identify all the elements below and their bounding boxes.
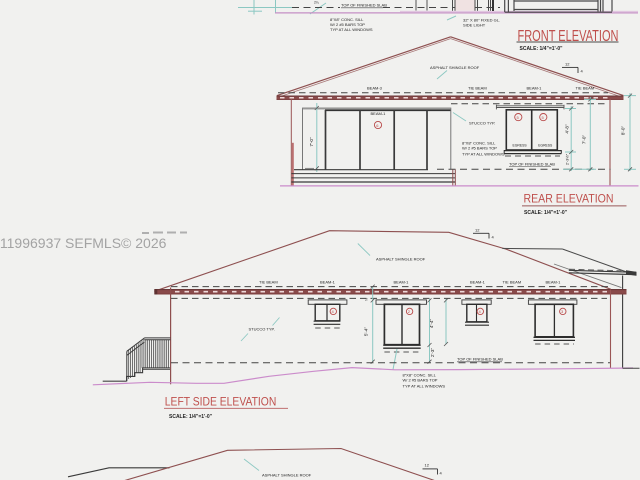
svg-text:¾: ¾ — [365, 298, 369, 301]
svg-text:7'-0": 7'-0" — [582, 135, 587, 145]
svg-text:TYP AT ALL WINDOWS: TYP AT ALL WINDOWS — [403, 383, 446, 388]
svg-text:TIE BEAM: TIE BEAM — [576, 86, 595, 91]
svg-text:12: 12 — [475, 228, 480, 233]
svg-text:2¼: 2¼ — [314, 1, 319, 5]
svg-text:STUCCO TYP.: STUCCO TYP. — [469, 121, 495, 126]
svg-text:EGRESS: EGRESS — [513, 144, 528, 148]
svg-text:5'-4": 5'-4" — [364, 327, 369, 337]
svg-text:BEAM-1: BEAM-1 — [527, 86, 543, 91]
svg-text:SIDE LIGHT: SIDE LIGHT — [463, 23, 486, 28]
svg-text:2'-3": 2'-3" — [430, 348, 435, 358]
svg-text:BEAM-1: BEAM-1 — [394, 279, 410, 284]
svg-text:2'-3½": 2'-3½" — [565, 153, 570, 165]
svg-text:BEAM-1: BEAM-1 — [320, 279, 336, 284]
svg-text:TYP AT ALL WINDOWS: TYP AT ALL WINDOWS — [330, 27, 373, 32]
svg-text:BEAM-1: BEAM-1 — [371, 111, 387, 116]
svg-text:TOP OF FINISHED SLAB: TOP OF FINISHED SLAB — [457, 357, 503, 362]
svg-text:12: 12 — [565, 62, 570, 67]
svg-text:W/ 2 #5 BARS TOP: W/ 2 #5 BARS TOP — [462, 146, 497, 151]
svg-text:W/ 2 #5 BARS TOP: W/ 2 #5 BARS TOP — [403, 378, 438, 383]
svg-text:STUCCO TYP.: STUCCO TYP. — [249, 327, 275, 332]
svg-text:EGRESS: EGRESS — [538, 144, 553, 148]
svg-text:BEAM-3: BEAM-3 — [367, 86, 383, 91]
svg-text:ASPHALT SHINGLE ROOF: ASPHALT SHINGLE ROOF — [430, 65, 480, 70]
svg-text:TIE BEAM: TIE BEAM — [503, 279, 522, 284]
svg-text:TIE BEAM: TIE BEAM — [468, 86, 487, 91]
svg-text:12: 12 — [425, 463, 430, 468]
svg-text:ASPHALT SHINGLE ROOF: ASPHALT SHINGLE ROOF — [262, 472, 312, 477]
svg-text:BEAM-1: BEAM-1 — [546, 279, 562, 284]
svg-text:TIE BEAM: TIE BEAM — [259, 279, 278, 284]
svg-text:REAR ELEVATION: REAR ELEVATION — [524, 191, 614, 205]
svg-text:7'-0": 7'-0" — [309, 137, 314, 147]
svg-text:SCALE: 1/4"=1'-0": SCALE: 1/4"=1'-0" — [524, 210, 568, 216]
svg-text:ASPHALT SHINGLE ROOF: ASPHALT SHINGLE ROOF — [376, 256, 426, 261]
svg-text:SCALE: 1/4"=1'-0": SCALE: 1/4"=1'-0" — [520, 46, 564, 52]
svg-text:LEFT SIDE ELEVATION: LEFT SIDE ELEVATION — [165, 396, 276, 409]
svg-text:SCALE: 1/4"=1'-0": SCALE: 1/4"=1'-0" — [169, 414, 213, 420]
svg-text:4'-8": 4'-8" — [565, 124, 570, 134]
svg-text:TOP OF FINISHED SLAB: TOP OF FINISHED SLAB — [509, 161, 555, 166]
svg-text:4'-4": 4'-4" — [429, 319, 434, 329]
svg-text:BEAM-1: BEAM-1 — [470, 279, 486, 284]
svg-text:TYP AT ALL WINDOWS: TYP AT ALL WINDOWS — [462, 152, 505, 157]
svg-text:,11996937 SEFMLS© 2026: ,11996937 SEFMLS© 2026 — [0, 235, 167, 251]
svg-text:8'-0": 8'-0" — [621, 126, 626, 136]
svg-text:TOP OF FINISHED SLAB: TOP OF FINISHED SLAB — [341, 3, 387, 8]
